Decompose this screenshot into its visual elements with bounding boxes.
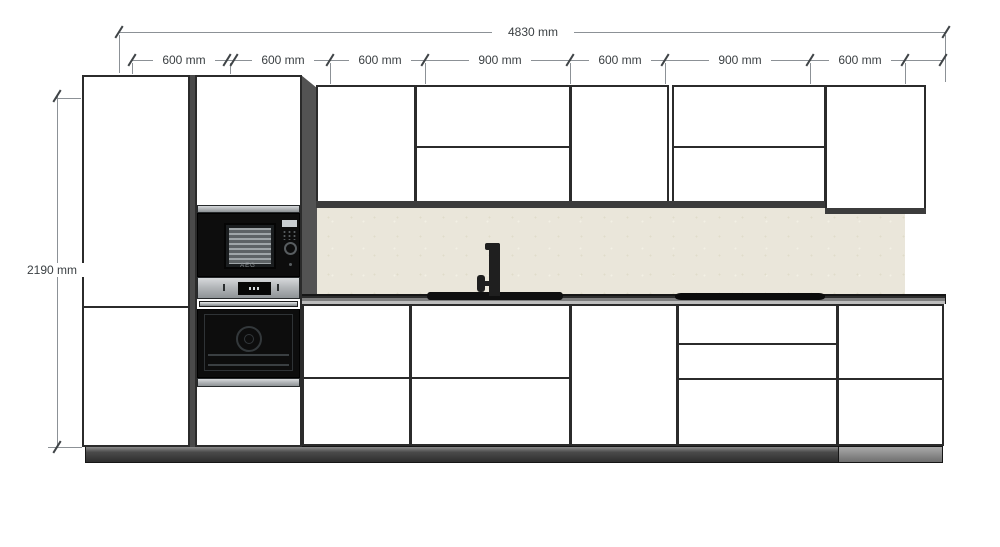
drawer-split-line <box>678 343 837 345</box>
extension-line <box>48 447 82 448</box>
dimension-label-seg1: 600 mm <box>153 53 215 67</box>
microwave[interactable]: AEG <box>197 213 300 277</box>
microwave-brand: AEG <box>233 263 263 271</box>
dimension-label-seg2: 600 mm <box>252 53 314 67</box>
microwave-window-grill <box>229 228 271 264</box>
extension-line <box>665 63 666 84</box>
flip-door-split-line <box>673 146 825 148</box>
oven-trim-bottom <box>197 378 300 387</box>
faucet-body[interactable] <box>489 243 500 296</box>
cooktop[interactable] <box>675 293 825 300</box>
dimension-label-seg3: 600 mm <box>349 53 411 67</box>
dimension-label-seg4: 900 mm <box>469 53 531 67</box>
microwave-dial[interactable] <box>284 242 297 255</box>
dimension-label-seg5: 600 mm <box>589 53 651 67</box>
oven-handle[interactable] <box>199 301 298 307</box>
oven-rack <box>208 364 289 366</box>
dimension-label-seg7: 600 mm <box>829 53 891 67</box>
extension-line <box>570 63 571 84</box>
dimension-label-seg6: 900 mm <box>709 53 771 67</box>
oven-display <box>238 282 271 295</box>
backsplash[interactable] <box>317 208 905 295</box>
plinth-right-section <box>838 446 943 463</box>
base-cabinet-sink[interactable] <box>410 304 571 446</box>
drawer-split-line <box>678 378 837 380</box>
wall-cabinet-4[interactable] <box>672 85 826 204</box>
countertop[interactable] <box>302 294 946 304</box>
oven-door[interactable] <box>197 309 300 378</box>
microwave-trim-top <box>197 205 300 213</box>
wall-cabinet-3[interactable] <box>570 85 669 204</box>
wall-cabinet-5[interactable] <box>825 85 926 210</box>
oven-control-panel[interactable] <box>197 277 300 299</box>
faucet-spout <box>485 243 500 250</box>
oven-fan-hub <box>244 334 254 344</box>
extension-line <box>425 63 426 84</box>
wall-cabinet-1[interactable] <box>316 85 416 204</box>
oven-panel-mark <box>277 284 279 291</box>
base-cabinet-3[interactable] <box>837 304 944 446</box>
drawer-split-line <box>303 377 410 379</box>
oven-rack <box>208 354 289 356</box>
wall-cabinet-shadow <box>825 208 926 214</box>
oven-door-glass <box>204 314 293 371</box>
door-split-line <box>83 306 189 308</box>
base-cabinet-cooktop[interactable] <box>677 304 838 446</box>
extension-line <box>810 63 811 84</box>
height-dimension-label: 2190 mm <box>24 263 88 277</box>
oven-panel-mark <box>223 284 225 291</box>
drawer-split-line <box>411 377 570 379</box>
extension-line <box>330 63 331 84</box>
wall-cabinet-2[interactable] <box>415 85 571 204</box>
base-cabinet-2[interactable] <box>570 304 678 446</box>
extension-line <box>119 35 120 73</box>
flip-door-split-line <box>416 146 570 148</box>
kitchen-elevation-drawing: 4830 mm 600 mm 600 mm 600 mm 900 mm 600 … <box>0 0 1000 547</box>
faucet-lever-arm <box>484 281 491 286</box>
tall-unit-side-panel <box>301 75 317 296</box>
extension-line <box>945 35 946 82</box>
microwave-indicator-dot <box>289 263 292 266</box>
drawer-split-line <box>838 378 943 380</box>
dimension-label-overall: 4830 mm <box>492 25 574 39</box>
wall-cabinet-shadow <box>316 201 825 208</box>
tall-cabinet-left[interactable] <box>82 75 190 447</box>
plinth[interactable] <box>85 446 943 463</box>
microwave-buttons[interactable] <box>282 230 297 240</box>
microwave-display <box>282 220 297 227</box>
extension-line <box>132 63 133 74</box>
extension-line <box>55 98 81 99</box>
oven-display-digits <box>249 287 261 290</box>
extension-line <box>905 63 906 84</box>
base-cabinet-1[interactable] <box>302 304 411 446</box>
